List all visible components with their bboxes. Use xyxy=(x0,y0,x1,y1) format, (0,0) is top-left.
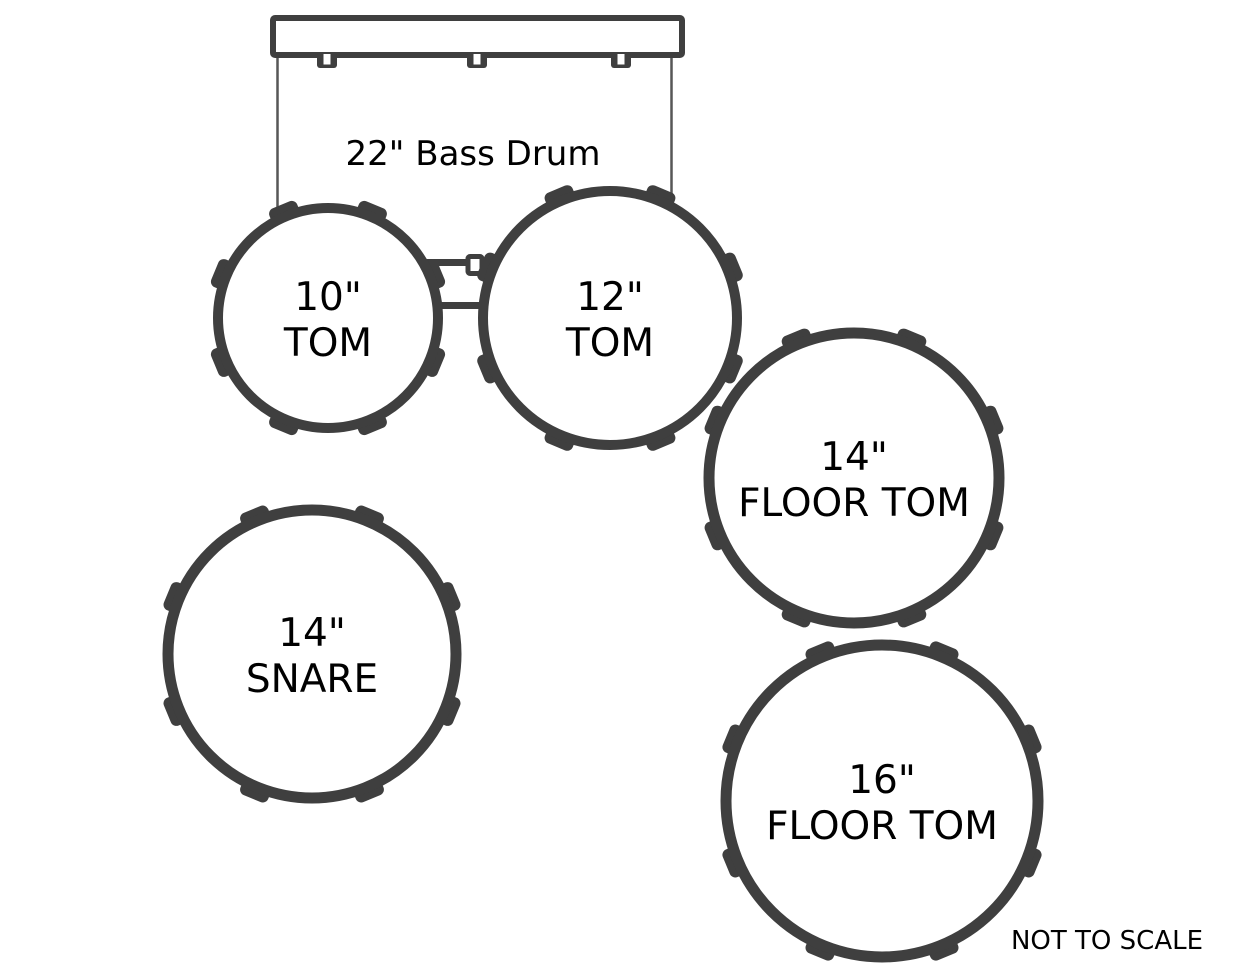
drum-size-label: 12" xyxy=(576,275,644,320)
drum-kit-canvas: 22" Bass Drum 10" TOM 12" TOM 14" FLOOR … xyxy=(0,0,1240,980)
bass-lug xyxy=(317,52,337,68)
bass-lug-slot xyxy=(474,54,481,65)
bass-lug xyxy=(467,52,487,68)
drum-16-floor-tom: 16" FLOOR TOM xyxy=(721,640,1044,963)
drum-name-label: FLOOR TOM xyxy=(738,481,970,526)
drum-size-label: 10" xyxy=(294,275,362,320)
bass-lug-slot xyxy=(324,54,331,65)
drum-name-label: TOM xyxy=(565,321,654,366)
bass-lug-slot xyxy=(618,54,625,65)
drum-name-label: TOM xyxy=(283,321,372,366)
drum-10-tom: 10" TOM xyxy=(209,199,447,437)
bass-drum-label: 22" Bass Drum xyxy=(346,134,601,174)
bass-hoop xyxy=(273,18,682,55)
drum-name-label: SNARE xyxy=(246,657,378,702)
drum-size-label: 14" xyxy=(278,611,346,656)
drum-name-label: FLOOR TOM xyxy=(766,804,998,849)
not-to-scale-note: NOT TO SCALE xyxy=(1011,926,1203,956)
drum-kit-diagram: 22" Bass Drum 10" TOM 12" TOM 14" FLOOR … xyxy=(0,0,1240,980)
drum-12-tom: 12" TOM xyxy=(475,183,744,452)
bass-drum: 22" Bass Drum xyxy=(273,18,682,214)
drum-size-label: 16" xyxy=(848,758,916,803)
bass-lug xyxy=(611,52,631,68)
drum-14-floor-tom: 14" FLOOR TOM xyxy=(703,327,1006,630)
drum-size-label: 14" xyxy=(820,435,888,480)
drum-14-snare: 14" SNARE xyxy=(162,504,463,805)
